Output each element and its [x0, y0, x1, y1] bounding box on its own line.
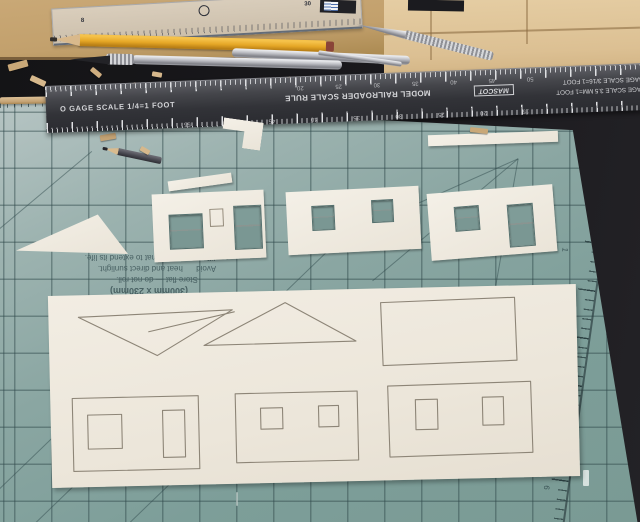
template-paper-sheet: [48, 284, 580, 488]
tool-label: [324, 2, 338, 11]
drawn-window: [318, 405, 338, 426]
cut-wall-piece-3: [427, 184, 558, 261]
wood-chip: [7, 60, 28, 72]
window-cutout: [233, 205, 263, 250]
clear-ruler-marking: 30: [304, 1, 311, 7]
wood-chip: [29, 75, 46, 87]
drawn-wall-3: [388, 381, 533, 457]
board-seam: [526, 0, 528, 44]
drawn-gable-left-extra-stroke: [148, 312, 234, 332]
pencil-drawings: [48, 284, 580, 488]
mat-care-store: Store flat — do not roll.: [62, 274, 252, 285]
door-cutout: [507, 203, 536, 248]
ruler-scale-label-o-gage: O GAGE SCALE 1/4=1 FOOT: [60, 100, 176, 113]
clear-ruler-target-mark: [198, 5, 210, 17]
drawn-window: [88, 414, 123, 449]
window-cutout: [311, 205, 335, 231]
mat-edge-number: 1: [560, 247, 570, 253]
dark-tool: [408, 0, 464, 11]
mat-scuff-mark: [236, 492, 238, 506]
drawn-door: [163, 410, 186, 457]
cut-wall-piece-2: [286, 186, 422, 255]
pencil-wood-tip: [54, 33, 80, 46]
drawn-window: [415, 399, 438, 429]
drawn-roof-panel: [381, 297, 517, 365]
pencil-graphite-tip: [50, 37, 57, 41]
wood-speck: [610, 150, 614, 154]
tool-with-label: [320, 0, 356, 14]
window-cutout: [371, 199, 394, 223]
wood-chip: [152, 71, 163, 78]
window-cutout: [454, 205, 481, 232]
drawn-wall-1: [72, 396, 200, 472]
clear-ruler-marking: 8: [81, 18, 85, 24]
workbench-photo: 12in x 9in (300mm x 230mm) Store flat — …: [0, 0, 640, 522]
mat-edge-number: 6: [542, 485, 552, 491]
drawn-window: [482, 397, 504, 425]
pencil-end-cap: [326, 42, 334, 52]
window-cutout: [168, 213, 203, 249]
cut-wall-piece-1: [152, 190, 267, 263]
knife-handle: [132, 55, 342, 69]
drawn-window-outline: [209, 208, 224, 227]
knife-blade: [70, 54, 110, 64]
wood-chip: [90, 67, 102, 79]
mat-care-avoid: Avoid heat and direct sunlight.: [62, 263, 252, 274]
pencil-graphite-tip: [102, 147, 108, 151]
drawn-wall-2: [235, 391, 359, 463]
mat-scuff-mark: [583, 470, 589, 486]
mat-scuff-mark: [586, 180, 590, 186]
knife-collet: [106, 53, 134, 65]
drawn-window: [260, 408, 282, 429]
ruler-brand: MASCOT: [473, 84, 514, 97]
drawn-gable-right: [203, 301, 356, 345]
